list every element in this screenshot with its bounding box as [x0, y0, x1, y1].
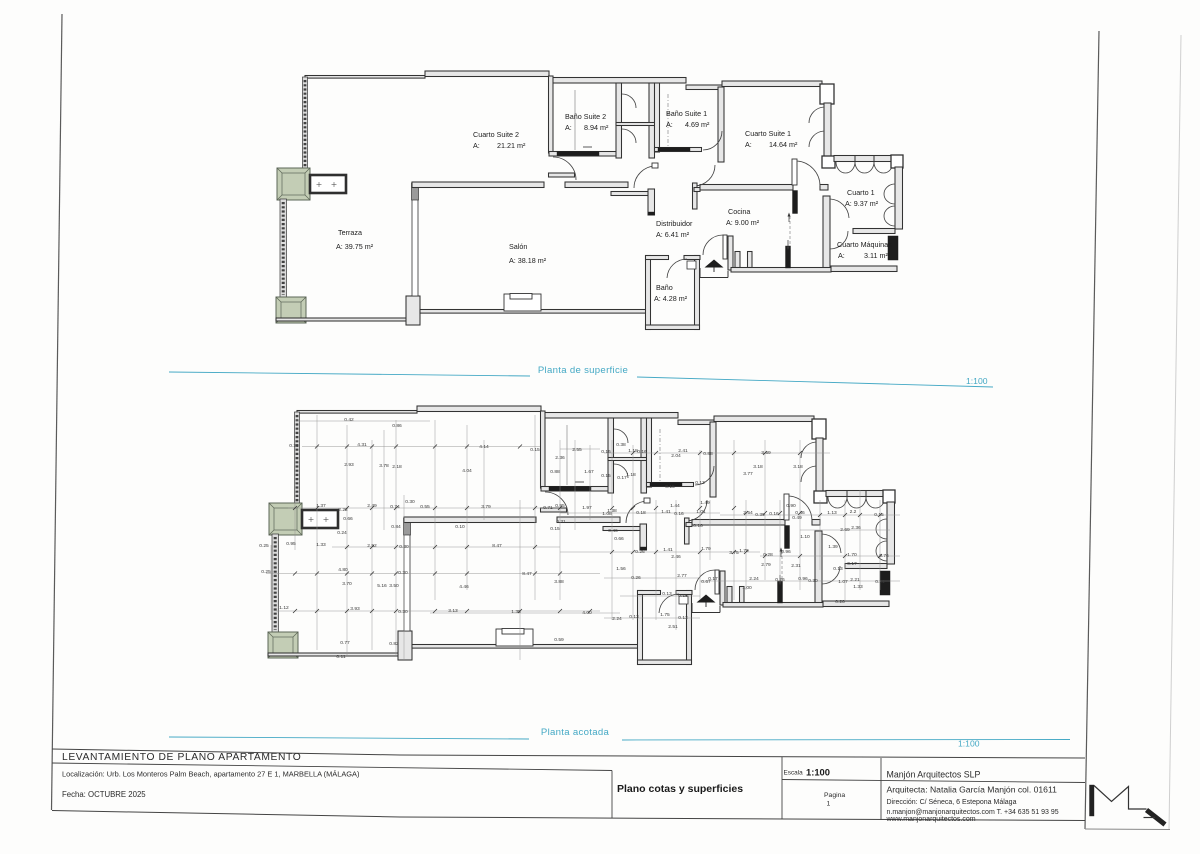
svg-text:3.11 m²: 3.11 m² — [864, 251, 888, 260]
svg-text:0.30: 0.30 — [398, 609, 408, 615]
svg-text:2.54: 2.54 — [743, 510, 753, 516]
svg-text:0.17: 0.17 — [708, 576, 718, 582]
svg-text:1.37: 1.37 — [316, 503, 326, 509]
svg-text:0.88: 0.88 — [703, 451, 713, 457]
svg-text:0.26: 0.26 — [775, 577, 785, 583]
svg-text:2.18: 2.18 — [392, 464, 402, 470]
svg-text:3.13: 3.13 — [448, 608, 458, 614]
svg-text:1.10: 1.10 — [800, 534, 810, 540]
svg-text:0.25: 0.25 — [289, 443, 299, 449]
svg-text:1.41: 1.41 — [661, 509, 671, 515]
svg-text:A: 38.18 m²: A: 38.18 m² — [509, 256, 547, 265]
svg-text:0.86: 0.86 — [392, 423, 402, 429]
svg-text:Cuarto Suite 2: Cuarto Suite 2 — [473, 130, 519, 139]
svg-text:A:: A: — [666, 120, 673, 129]
svg-text:Cuarto Máquinas: Cuarto Máquinas — [837, 240, 892, 249]
svg-text:0.95: 0.95 — [555, 503, 565, 509]
svg-text:3.50: 3.50 — [389, 583, 399, 589]
svg-text:Distribuidor: Distribuidor — [656, 219, 693, 228]
svg-text:2.21: 2.21 — [850, 577, 860, 583]
svg-text:A:: A: — [473, 141, 480, 150]
svg-text:A: 4.28 m²: A: 4.28 m² — [654, 294, 688, 303]
svg-text:2.04: 2.04 — [671, 453, 681, 459]
svg-text:1.01: 1.01 — [696, 509, 706, 515]
svg-text:0.13: 0.13 — [629, 614, 639, 620]
svg-text:1.67: 1.67 — [584, 469, 594, 475]
svg-text:0.76: 0.76 — [879, 553, 889, 559]
svg-text:0.16: 0.16 — [637, 449, 647, 455]
svg-text:0.74: 0.74 — [390, 504, 400, 510]
svg-text:0.28: 0.28 — [763, 552, 773, 558]
svg-text:A: 9.37 m²: A: 9.37 m² — [845, 199, 879, 208]
svg-text:3.70: 3.70 — [342, 581, 352, 587]
svg-text:5.16: 5.16 — [377, 583, 387, 589]
svg-text:Escala: Escala — [784, 770, 804, 777]
svg-text:0.71: 0.71 — [543, 505, 553, 511]
svg-text:1.00: 1.00 — [742, 585, 752, 591]
svg-text:Cocina: Cocina — [728, 207, 750, 216]
svg-text:0.15: 0.15 — [874, 512, 884, 518]
svg-text:3.78: 3.78 — [379, 463, 389, 469]
svg-text:14.64 m²: 14.64 m² — [769, 140, 798, 149]
svg-text:1.49: 1.49 — [700, 500, 710, 506]
svg-text:1.33: 1.33 — [853, 584, 863, 590]
svg-text:0.30: 0.30 — [405, 499, 415, 505]
svg-text:2.49: 2.49 — [367, 503, 377, 509]
svg-text:0.49: 0.49 — [792, 515, 802, 521]
svg-text:2.69: 2.69 — [840, 527, 850, 533]
svg-text:1.75: 1.75 — [660, 612, 670, 618]
svg-text:0.15: 0.15 — [665, 484, 675, 490]
svg-text:Pagina: Pagina — [824, 792, 845, 799]
svg-text:0.82: 0.82 — [389, 641, 399, 647]
svg-text:0.26: 0.26 — [631, 575, 641, 581]
svg-text:Arquitecta: Natalia García Man: Arquitecta: Natalia García Manjón col. 0… — [887, 785, 1058, 795]
svg-text:0.10: 0.10 — [455, 524, 465, 530]
svg-text:0.90: 0.90 — [786, 503, 796, 509]
svg-text:0.39: 0.39 — [755, 512, 765, 518]
svg-text:2.51: 2.51 — [668, 624, 678, 630]
svg-text:Planta acotada: Planta acotada — [541, 727, 610, 738]
svg-text:3.93: 3.93 — [350, 606, 360, 612]
svg-text:1: 1 — [827, 801, 831, 808]
svg-text:0.16: 0.16 — [601, 449, 611, 455]
svg-text:A:: A: — [745, 140, 752, 149]
svg-text:4.80: 4.80 — [338, 567, 348, 573]
svg-text:Fecha: OCTUBRE 2025: Fecha: OCTUBRE 2025 — [62, 790, 146, 799]
svg-text:Planta de superficie: Planta de superficie — [538, 365, 628, 376]
svg-text:3.77: 3.77 — [743, 471, 753, 477]
svg-text:0.21: 0.21 — [875, 579, 885, 585]
svg-text:8.94 m²: 8.94 m² — [584, 123, 609, 132]
svg-text:4.69 m²: 4.69 m² — [685, 120, 710, 129]
svg-text:0.66: 0.66 — [614, 536, 624, 542]
svg-text:4.31: 4.31 — [357, 442, 367, 448]
svg-text:0.38: 0.38 — [616, 442, 626, 448]
svg-text:A: 39.75 m²: A: 39.75 m² — [336, 242, 374, 251]
svg-text:0.15: 0.15 — [550, 526, 560, 532]
svg-text:1.97: 1.97 — [582, 505, 592, 511]
svg-text:1.70: 1.70 — [847, 552, 857, 558]
svg-text:0.13: 0.13 — [833, 566, 843, 572]
svg-text:2.46: 2.46 — [671, 554, 681, 560]
svg-text:0.16: 0.16 — [674, 511, 684, 517]
svg-text:0.30: 0.30 — [399, 544, 409, 550]
svg-text:0.30: 0.30 — [398, 570, 408, 576]
svg-text:n.manjon@manjonarquitectos.com: n.manjon@manjonarquitectos.com T. +34 63… — [887, 809, 1059, 816]
svg-text:0.13: 0.13 — [695, 480, 705, 486]
svg-text:0.66: 0.66 — [343, 516, 353, 522]
svg-text:Baño Suite 1: Baño Suite 1 — [666, 109, 707, 118]
svg-text:A:: A: — [838, 251, 845, 260]
svg-text:1.08: 1.08 — [602, 511, 612, 517]
svg-text:0.46: 0.46 — [608, 528, 618, 534]
svg-text:2.36: 2.36 — [851, 525, 861, 531]
svg-text:0.16: 0.16 — [769, 511, 779, 517]
svg-text:0.59: 0.59 — [554, 637, 564, 643]
svg-text:1:100: 1:100 — [958, 739, 980, 749]
svg-text:1:100: 1:100 — [806, 767, 830, 778]
svg-text:2.93: 2.93 — [344, 462, 354, 468]
svg-text:3.18: 3.18 — [753, 464, 763, 470]
svg-text:4.14: 4.14 — [479, 444, 489, 450]
svg-text:Cuarto 1: Cuarto 1 — [847, 188, 875, 197]
svg-text:1.12: 1.12 — [279, 605, 289, 611]
svg-text:2.2: 2.2 — [850, 509, 857, 515]
svg-text:2.22: 2.22 — [338, 507, 348, 513]
svg-text:4.04: 4.04 — [462, 468, 472, 474]
svg-text:4.46: 4.46 — [459, 584, 469, 590]
svg-text:0.77: 0.77 — [340, 640, 350, 646]
svg-text:2.52: 2.52 — [367, 543, 377, 549]
svg-text:LEVANTAMIENTO DE PLANO APARTAM: LEVANTAMIENTO DE PLANO APARTAMENTO — [62, 752, 301, 763]
svg-text:0.95: 0.95 — [286, 541, 296, 547]
svg-text:1.35: 1.35 — [511, 609, 521, 615]
svg-text:0.96: 0.96 — [781, 549, 791, 555]
svg-text:8.47: 8.47 — [522, 571, 532, 577]
svg-text:2.24: 2.24 — [749, 576, 759, 582]
svg-text:0.26: 0.26 — [635, 549, 645, 555]
svg-text:0.42: 0.42 — [344, 417, 354, 423]
svg-text:Terraza: Terraza — [338, 228, 362, 237]
svg-text:1.79: 1.79 — [739, 548, 749, 554]
svg-text:1.18: 1.18 — [626, 472, 636, 478]
svg-text:0.17: 0.17 — [847, 561, 857, 567]
svg-text:0.24: 0.24 — [337, 530, 347, 536]
svg-text:0.13: 0.13 — [678, 615, 688, 621]
svg-text:3.69: 3.69 — [761, 450, 771, 456]
svg-text:1.44: 1.44 — [670, 503, 680, 509]
svg-text:0.15: 0.15 — [530, 447, 540, 453]
svg-text:Salón: Salón — [509, 242, 527, 251]
svg-text:0.15: 0.15 — [601, 473, 611, 479]
svg-text:0.96: 0.96 — [798, 576, 808, 582]
svg-text:3.18: 3.18 — [793, 464, 803, 470]
svg-text:1.41: 1.41 — [663, 547, 673, 553]
svg-text:1.07: 1.07 — [838, 579, 848, 585]
svg-text:Dirección: C/ Séneca, 6 Estepo: Dirección: C/ Séneca, 6 Estepona Málaga — [887, 799, 1017, 806]
svg-text:0.16: 0.16 — [693, 523, 703, 529]
svg-text:2.24: 2.24 — [612, 616, 622, 622]
svg-text:www.manjonarquitectos.com: www.manjonarquitectos.com — [886, 816, 976, 823]
svg-text:0.31: 0.31 — [556, 519, 566, 525]
svg-text:1.79: 1.79 — [701, 546, 711, 552]
svg-text:Cuarto Suite 1: Cuarto Suite 1 — [745, 129, 791, 138]
svg-text:Baño: Baño — [656, 283, 673, 292]
svg-text:0.26: 0.26 — [835, 599, 845, 605]
svg-text:1.33: 1.33 — [316, 542, 326, 548]
svg-text:21.21 m²: 21.21 m² — [497, 141, 526, 150]
svg-text:2.79: 2.79 — [761, 562, 771, 568]
svg-text:0.25: 0.25 — [259, 543, 269, 549]
svg-text:0.88: 0.88 — [550, 469, 560, 475]
svg-text:2.55: 2.55 — [572, 447, 582, 453]
svg-text:Plano cotas y superficies: Plano cotas y superficies — [617, 783, 743, 795]
svg-text:1.56: 1.56 — [616, 566, 626, 572]
svg-text:3.88: 3.88 — [554, 579, 564, 585]
svg-text:0.25: 0.25 — [261, 569, 271, 575]
svg-text:3.79: 3.79 — [481, 504, 491, 510]
svg-text:0.30: 0.30 — [808, 578, 818, 584]
svg-text:A:: A: — [565, 123, 572, 132]
svg-text:1.39: 1.39 — [828, 544, 838, 550]
svg-text:2.77: 2.77 — [677, 573, 687, 579]
svg-text:0.18: 0.18 — [636, 510, 646, 516]
svg-text:8.47: 8.47 — [492, 543, 502, 549]
svg-text:3.75: 3.75 — [729, 550, 739, 556]
svg-text:A: 6.41 m²: A: 6.41 m² — [656, 230, 690, 239]
svg-text:0.13: 0.13 — [662, 591, 672, 597]
svg-text:0.15: 0.15 — [678, 593, 688, 599]
svg-text:A: 9.00 m²: A: 9.00 m² — [726, 218, 760, 227]
svg-text:Manjón Arquitectos SLP: Manjón Arquitectos SLP — [887, 770, 981, 780]
svg-text:4.00: 4.00 — [582, 610, 592, 616]
svg-text:0.17: 0.17 — [617, 475, 627, 481]
svg-text:Localización: Urb. Los Monter: Localización: Urb. Los Monteros Palm Bea… — [62, 770, 359, 779]
svg-text:0.55: 0.55 — [420, 504, 430, 510]
svg-text:0.11: 0.11 — [336, 654, 345, 660]
svg-text:1:100: 1:100 — [966, 376, 988, 386]
svg-text:1.13: 1.13 — [827, 510, 837, 516]
svg-text:2.31: 2.31 — [791, 563, 801, 569]
svg-text:2.36: 2.36 — [555, 455, 565, 461]
svg-text:Baño Suite 2: Baño Suite 2 — [565, 112, 606, 121]
svg-text:0.84: 0.84 — [391, 524, 401, 530]
